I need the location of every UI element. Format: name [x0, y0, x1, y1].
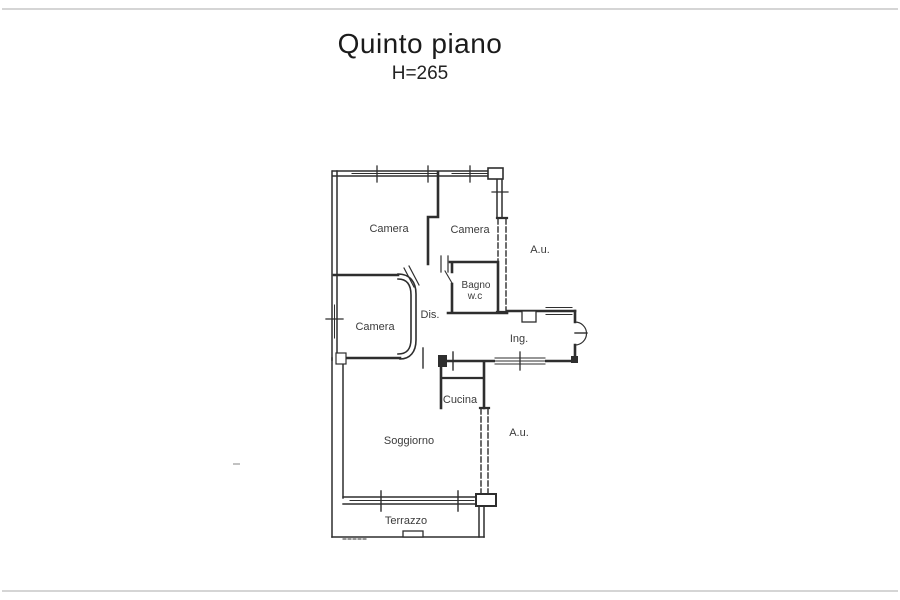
- room-label-cucina: Cucina: [443, 394, 478, 406]
- room-label-camera-2: Camera: [450, 224, 490, 236]
- annotation-au-lower: A.u.: [509, 427, 529, 439]
- room-label-ing: Ing.: [510, 333, 528, 345]
- room-label-terrazzo: Terrazzo: [385, 515, 427, 527]
- room-label-bagno: Bagno: [462, 280, 491, 291]
- interior-walls: [334, 172, 575, 408]
- scanned-floorplan-page: Quinto piano H=265: [0, 0, 900, 600]
- floor-plan-drawing: Camera Camera Bagno w.c A.u. Dis. Camera…: [0, 0, 900, 600]
- annotation-au-upper: A.u.: [530, 244, 550, 256]
- room-label-soggiorno: Soggiorno: [384, 435, 434, 447]
- windows: [326, 166, 572, 511]
- room-label-camera-3: Camera: [355, 321, 395, 333]
- terrace-details: [343, 531, 423, 539]
- room-label-camera-1: Camera: [369, 223, 409, 235]
- room-label-dis: Dis.: [421, 309, 440, 321]
- room-label-wc: w.c: [467, 291, 482, 302]
